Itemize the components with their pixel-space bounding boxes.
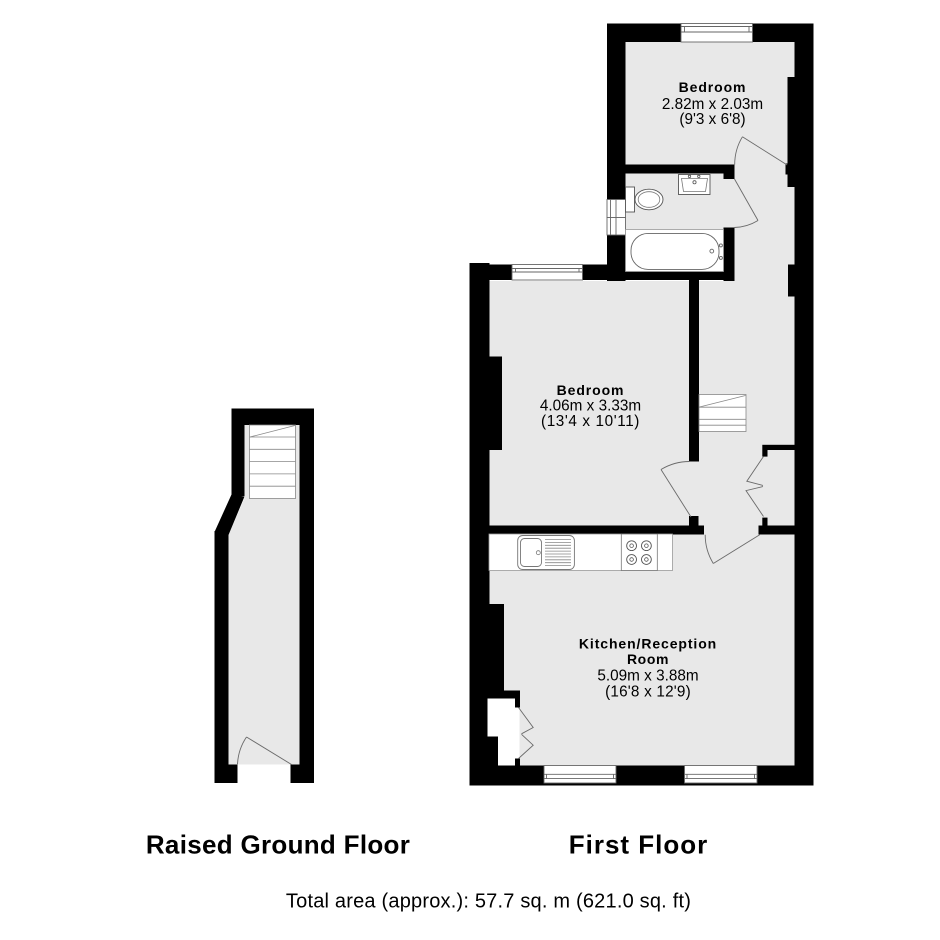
svg-text:Room: Room — [627, 651, 669, 667]
svg-text:4.06m x 3.33m: 4.06m x 3.33m — [540, 398, 641, 415]
svg-text:Raised Ground Floor: Raised Ground Floor — [146, 830, 410, 860]
svg-text:Bedroom: Bedroom — [679, 79, 747, 95]
svg-text:Total area (approx.): 57.7 sq.: Total area (approx.): 57.7 sq. m (621.0 … — [286, 891, 691, 913]
svg-text:Bedroom: Bedroom — [557, 382, 625, 398]
svg-text:(13'4 x 10'11): (13'4 x 10'11) — [541, 413, 640, 430]
svg-text:First Floor: First Floor — [569, 830, 709, 860]
svg-text:5.09m x 3.88m: 5.09m x 3.88m — [597, 668, 698, 685]
svg-text:Kitchen/Reception: Kitchen/Reception — [579, 635, 717, 651]
svg-text:(9'3 x 6'8): (9'3 x 6'8) — [679, 111, 745, 128]
svg-text:(16'8 x 12'9): (16'8 x 12'9) — [605, 683, 691, 700]
